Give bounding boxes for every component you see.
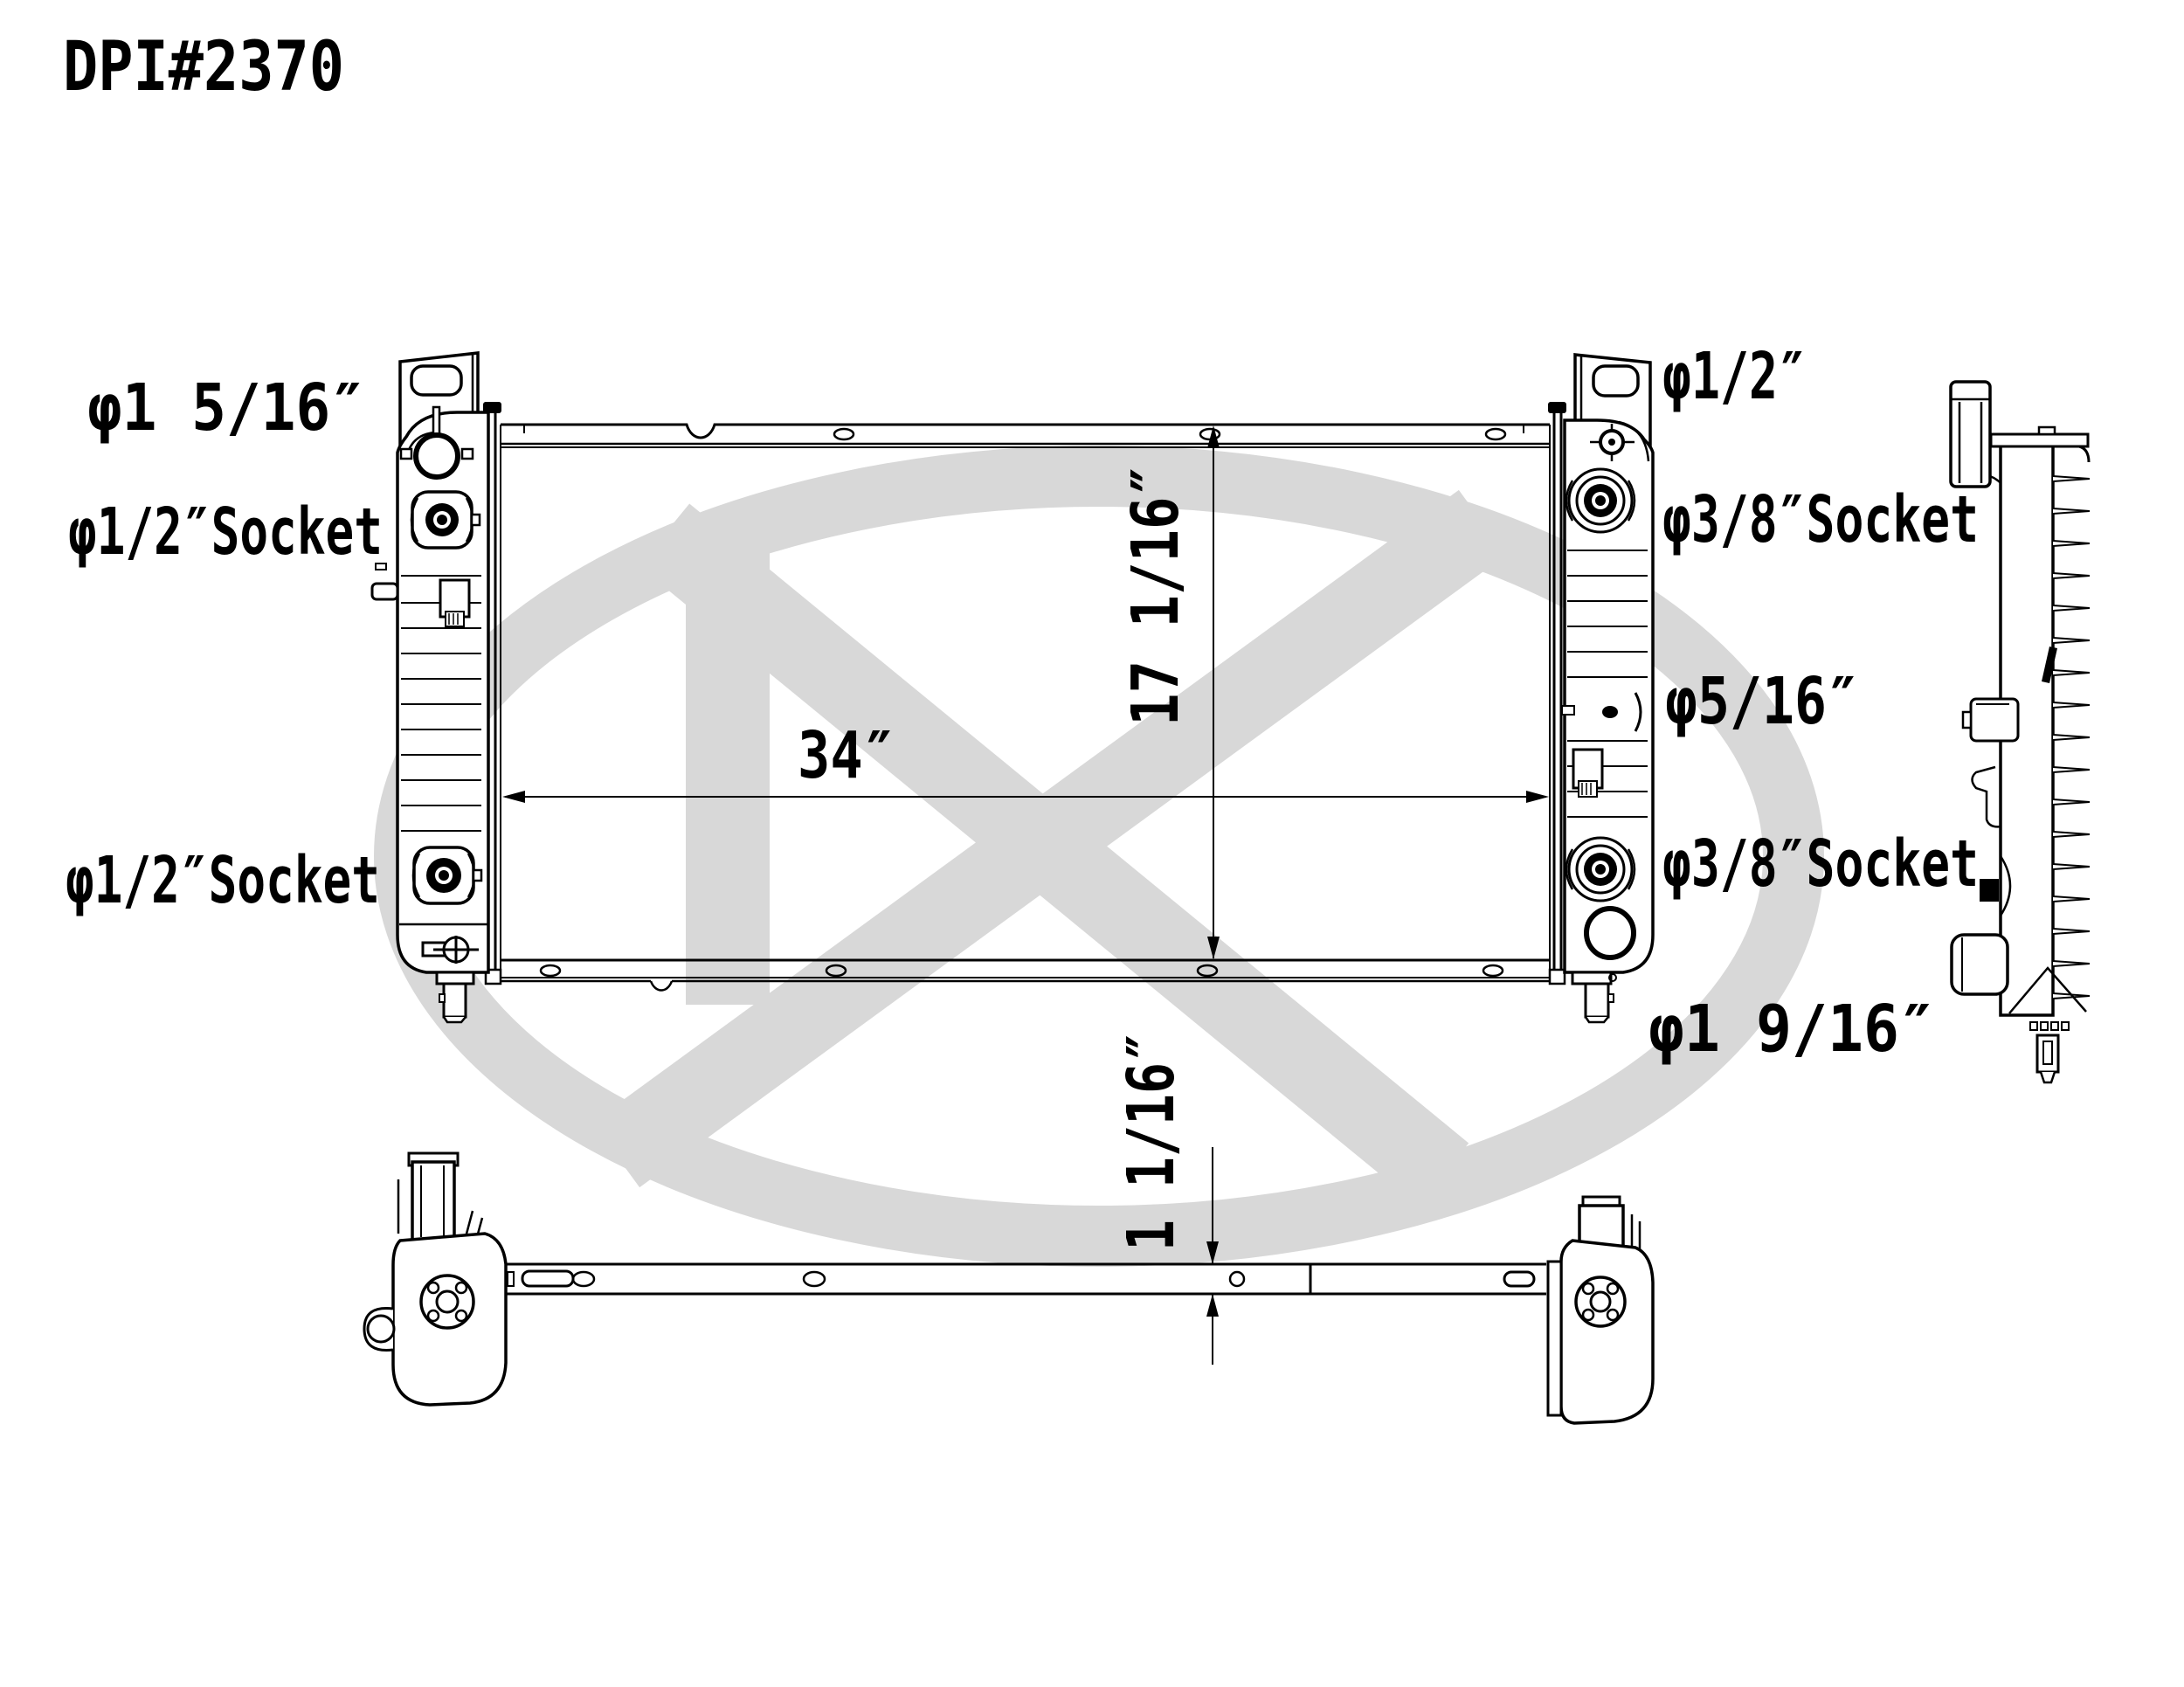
- dimension-core-width: 34″: [798, 718, 895, 793]
- right-tank: [1562, 420, 1653, 1022]
- side-hook-clip: [1973, 767, 2002, 826]
- label-right-lower-socket: φ3/8″Socket: [1662, 826, 1979, 902]
- arrowhead-right-icon: [1526, 791, 1549, 803]
- radiator-spec-drawing: DPI#2370 φ1 5/16″ φ1/2″Socket φ1/2″Socke…: [0, 0, 2184, 1687]
- bottom-view-strip: [507, 1264, 1546, 1294]
- label-upper-hose-port: φ1 5/16″: [87, 370, 365, 446]
- filler-neck: [1951, 382, 1990, 487]
- side-lower-hose-port: [1952, 935, 2008, 994]
- label-left-lower-socket: φ1/2″Socket: [66, 843, 380, 918]
- bottom-left-tank-assembly: [364, 1153, 506, 1405]
- overflow-port: [1963, 699, 2018, 741]
- label-right-top-port: φ1/2″: [1662, 339, 1807, 414]
- arrowhead-left-icon: [502, 791, 525, 803]
- label-right-upper-socket: φ3/8″Socket: [1662, 482, 1979, 557]
- side-bottom-pin: [2037, 1035, 2058, 1082]
- arrowhead-up2-icon: [1206, 1294, 1219, 1317]
- right-lower-socket-fitting: [1566, 838, 1635, 901]
- right-drain-plug: [1586, 984, 1614, 1022]
- label-left-upper-socket: φ1/2″Socket: [68, 494, 383, 570]
- side-socket-fitting: [1980, 879, 1999, 902]
- cooling-fins: [2053, 476, 2090, 999]
- label-lower-hose-port: φ1 9/16″: [1648, 992, 1935, 1067]
- left-drain-plug: [439, 984, 466, 1022]
- dimension-core-height: 17 1/16″: [1118, 464, 1193, 726]
- drawing-title: DPI#2370: [63, 28, 344, 107]
- right-upper-socket-fitting: [1566, 469, 1635, 532]
- left-upper-socket-fitting: [411, 492, 480, 548]
- left-lower-socket-fitting: [413, 847, 481, 903]
- dimension-core-thickness: 1 1/16″: [1114, 1031, 1189, 1251]
- label-vent-port: φ5/16″: [1665, 664, 1859, 739]
- bottom-right-tank-assembly: [1548, 1197, 1653, 1423]
- core-top-edge: [501, 425, 1550, 438]
- bottom-view-inlet-pipe: [412, 1162, 454, 1242]
